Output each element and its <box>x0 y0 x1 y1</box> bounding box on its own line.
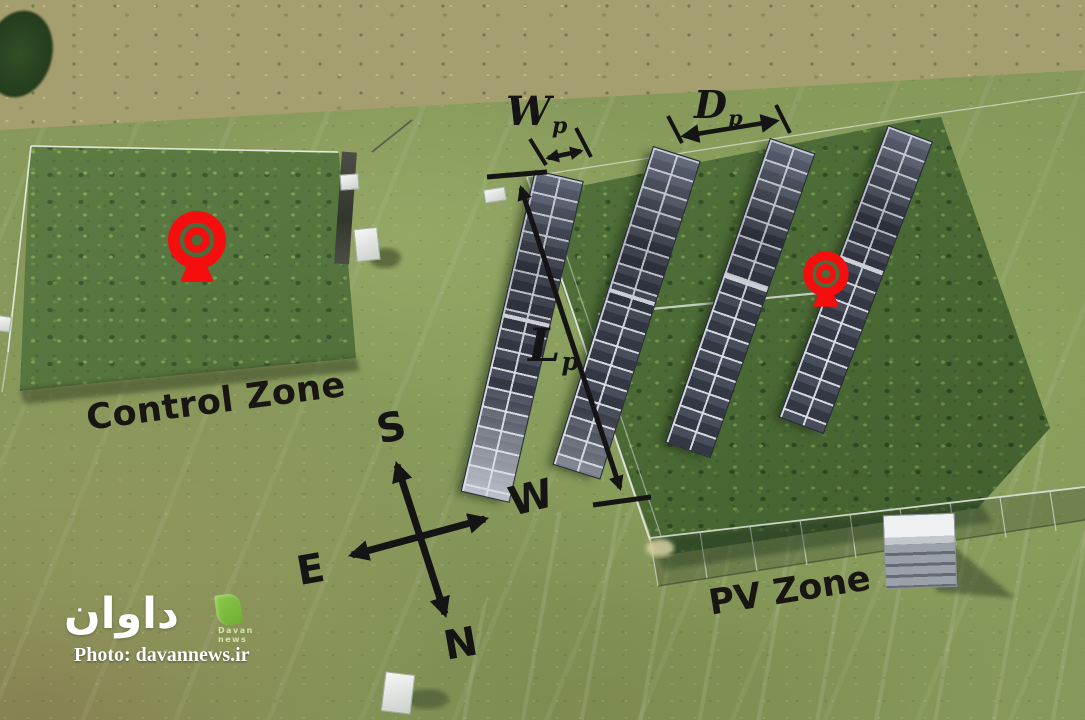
panel-width-symbol: W <box>506 88 551 135</box>
photo-credit: Photo: davannews.ir <box>74 644 250 667</box>
davan-logo-caption: Davan news <box>218 626 254 644</box>
panel-width-label: Wp <box>506 88 567 139</box>
webcam-icon-control <box>168 211 226 282</box>
row-length-symbol: L <box>528 318 560 372</box>
row-spacing-label: Dp <box>694 82 743 130</box>
row-spacing-subscript: p <box>728 105 743 130</box>
panel-width-subscript: p <box>552 113 567 139</box>
row-length-label: Lp <box>528 318 579 376</box>
webcam-icon-pv <box>803 251 848 306</box>
row-length-subscript: p <box>561 346 579 376</box>
row-spacing-symbol: D <box>694 82 727 127</box>
logo-caption-line2: news <box>218 635 254 644</box>
logo-caption-line1: Davan <box>218 626 254 635</box>
aerial-photo: Control Zone PV Zone S W E N Wp Dp Lp دا… <box>0 0 1085 720</box>
compass-rose <box>352 465 485 614</box>
davan-logo-text: داوان <box>64 591 179 638</box>
